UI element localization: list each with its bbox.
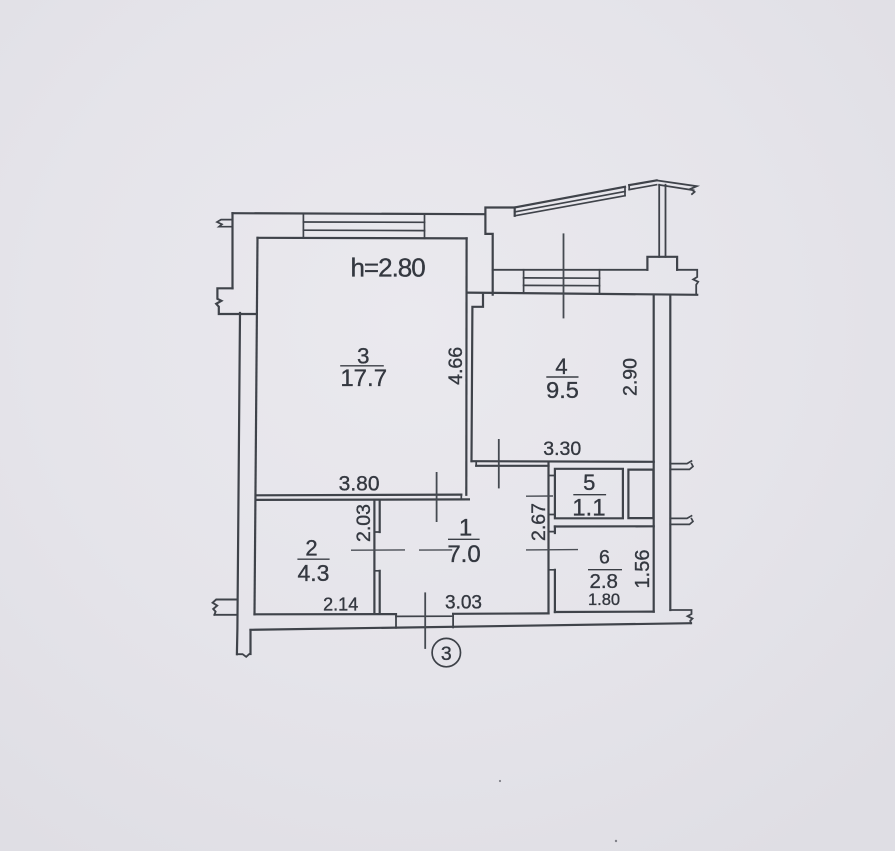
- svg-text:2.14: 2.14: [323, 595, 358, 615]
- svg-text:9.5: 9.5: [546, 377, 579, 403]
- svg-text:3.80: 3.80: [339, 473, 380, 496]
- svg-text:6: 6: [599, 546, 610, 568]
- svg-text:2.67: 2.67: [528, 503, 550, 541]
- svg-text:4: 4: [555, 354, 567, 379]
- svg-text:4.66: 4.66: [445, 347, 467, 385]
- svg-text:1.56: 1.56: [632, 550, 654, 589]
- svg-text:1.80: 1.80: [588, 591, 620, 609]
- svg-text:3: 3: [441, 643, 452, 665]
- svg-text:1.1: 1.1: [572, 495, 605, 522]
- svg-text:2.03: 2.03: [353, 504, 375, 542]
- svg-text:h=2.80: h=2.80: [350, 253, 425, 283]
- svg-text:5: 5: [583, 470, 595, 495]
- svg-text:2.8: 2.8: [589, 570, 618, 593]
- svg-text:3.03: 3.03: [445, 593, 482, 614]
- svg-text:2.90: 2.90: [620, 358, 642, 396]
- svg-text:7.0: 7.0: [447, 541, 480, 568]
- svg-text:1: 1: [459, 515, 472, 542]
- svg-text:2: 2: [305, 536, 317, 561]
- svg-text:3.30: 3.30: [543, 438, 581, 460]
- svg-text:4.3: 4.3: [298, 560, 330, 586]
- svg-text:17.7: 17.7: [340, 365, 387, 392]
